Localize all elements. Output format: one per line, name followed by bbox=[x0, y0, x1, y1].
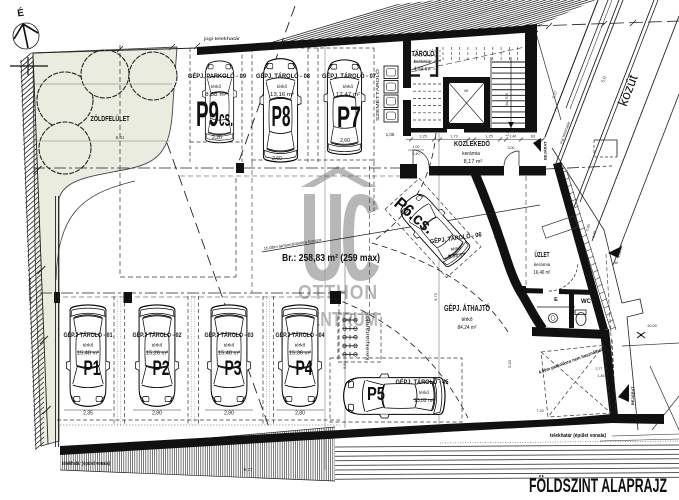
svg-text:2,80: 2,80 bbox=[152, 411, 162, 417]
svg-text:térkő: térkő bbox=[152, 343, 163, 349]
svg-text:P7: P7 bbox=[337, 101, 361, 134]
svg-text:1,25: 1,25 bbox=[419, 135, 426, 139]
svg-text:1,05: 1,05 bbox=[386, 132, 395, 137]
svg-text:WC: WC bbox=[581, 298, 591, 305]
svg-text:2,35: 2,35 bbox=[83, 411, 93, 417]
svg-text:ÜZLET: ÜZLET bbox=[535, 250, 550, 259]
svg-text:kerékpártároló: kerékpártároló bbox=[365, 315, 370, 360]
svg-text:2,80: 2,80 bbox=[295, 411, 305, 417]
svg-text:2,77: 2,77 bbox=[596, 367, 603, 371]
svg-text:1,00: 1,00 bbox=[413, 145, 420, 149]
svg-text:kerámia: kerámia bbox=[414, 59, 431, 64]
svg-text:E: E bbox=[554, 297, 558, 303]
svg-text:térkő: térkő bbox=[295, 343, 306, 349]
svg-text:P1: P1 bbox=[84, 356, 101, 380]
svg-text:BEJÁRAT: BEJÁRAT bbox=[630, 386, 635, 405]
svg-text:TÁROLÓ: TÁROLÓ bbox=[412, 49, 435, 58]
svg-text:1,73: 1,73 bbox=[450, 135, 457, 139]
svg-text:jogi telekhatár: jogi telekhatár bbox=[203, 36, 241, 41]
svg-text:63: 63 bbox=[531, 135, 535, 139]
svg-text:16x17/29: 16x17/29 bbox=[505, 93, 509, 107]
svg-text:±0,00: ±0,00 bbox=[647, 324, 656, 328]
svg-text:2,20: 2,20 bbox=[212, 135, 222, 141]
svg-text:9,73: 9,73 bbox=[434, 293, 438, 300]
svg-text:2,60: 2,60 bbox=[340, 138, 350, 144]
svg-text:jogi telekhatár: jogi telekhatár bbox=[27, 277, 32, 304]
svg-text:7,20: 7,20 bbox=[536, 409, 543, 413]
svg-text:P8: P8 bbox=[272, 101, 291, 133]
svg-text:P5: P5 bbox=[367, 383, 385, 404]
svg-text:telekhatár (épület vonala): telekhatár (épület vonala) bbox=[62, 461, 110, 467]
svg-text:P9: P9 bbox=[196, 95, 219, 134]
svg-text:16,40 m²: 16,40 m² bbox=[534, 270, 551, 276]
svg-text:telekhatár (épület vonala): telekhatár (épület vonala) bbox=[550, 433, 606, 439]
svg-text:ZÖLDFELÜLET: ZÖLDFELÜLET bbox=[91, 114, 130, 123]
svg-text:KÖZLEKEDŐ: KÖZLEKEDŐ bbox=[454, 139, 490, 148]
svg-text:1,40: 1,40 bbox=[510, 135, 517, 139]
svg-text:3,00: 3,00 bbox=[508, 146, 515, 150]
svg-text:2,40: 2,40 bbox=[413, 152, 420, 156]
svg-text:GÉP.J TÁROLÓ - 03: GÉP.J TÁROLÓ - 03 bbox=[205, 330, 254, 339]
svg-text:13,16 m²: 13,16 m² bbox=[270, 92, 294, 98]
svg-text:GÉPJ. TÁROLÓ - 05: GÉPJ. TÁROLÓ - 05 bbox=[396, 377, 449, 386]
svg-text:GÉPJ. ÁTHAJTÓ: GÉPJ. ÁTHAJTÓ bbox=[444, 302, 490, 313]
svg-text:1,45: 1,45 bbox=[598, 374, 605, 378]
svg-text:FÖLDSZINT ALAPRAJZ: FÖLDSZINT ALAPRAJZ bbox=[529, 474, 667, 497]
svg-text:5,50: 5,50 bbox=[507, 359, 512, 368]
svg-text:Br.: 258,83 m² (259 max): Br.: 258,83 m² (259 max) bbox=[282, 253, 380, 264]
svg-text:P3: P3 bbox=[225, 356, 242, 380]
svg-text:kerámia: kerámia bbox=[462, 151, 480, 157]
svg-text:GÉPJ. TÁROLÓ - 07: GÉPJ. TÁROLÓ - 07 bbox=[322, 71, 376, 80]
svg-text:1,25: 1,25 bbox=[485, 135, 492, 139]
svg-text:P4: P4 bbox=[296, 356, 313, 380]
svg-text:2,80: 2,80 bbox=[224, 411, 234, 417]
svg-text:2,60: 2,60 bbox=[272, 156, 282, 162]
svg-text:5,50: 5,50 bbox=[342, 360, 347, 369]
svg-text:térkő: térkő bbox=[277, 84, 288, 89]
svg-text:GÉPJ. TÁROLÓ - 08: GÉPJ. TÁROLÓ - 08 bbox=[256, 71, 310, 80]
svg-text:4,10 m²: 4,10 m² bbox=[414, 67, 431, 73]
svg-text:kerámia: kerámia bbox=[534, 262, 551, 267]
svg-text:12,47 m²: 12,47 m² bbox=[336, 92, 360, 98]
svg-text:GÉPJ. PARKOLÓ - 09: GÉPJ. PARKOLÓ - 09 bbox=[188, 71, 246, 80]
svg-text:BEJÁRAT: BEJÁRAT bbox=[543, 141, 548, 160]
svg-text:GÉP.J TÁROLÓ - 01: GÉP.J TÁROLÓ - 01 bbox=[64, 330, 113, 339]
svg-text:GÉP.J TÁROLÓ - 02: GÉP.J TÁROLÓ - 02 bbox=[133, 330, 182, 339]
svg-text:P2: P2 bbox=[153, 356, 170, 380]
svg-text:84,24 m²: 84,24 m² bbox=[458, 325, 477, 331]
svg-text:térkő: térkő bbox=[83, 343, 94, 349]
svg-text:8,17 m²: 8,17 m² bbox=[464, 159, 483, 165]
svg-text:6,77: 6,77 bbox=[244, 467, 253, 472]
svg-text:térkő: térkő bbox=[211, 84, 222, 89]
svg-text:térkő: térkő bbox=[343, 84, 354, 89]
svg-text:térkő: térkő bbox=[224, 343, 235, 349]
svg-text:térkő: térkő bbox=[461, 317, 472, 323]
svg-text:cs.: cs. bbox=[219, 106, 233, 131]
svg-text:térkő: térkő bbox=[419, 390, 430, 395]
svg-text:GÉP.J TÁROLÓ - 04: GÉP.J TÁROLÓ - 04 bbox=[276, 330, 325, 339]
svg-text:13,02 m²: 13,02 m² bbox=[414, 398, 434, 404]
